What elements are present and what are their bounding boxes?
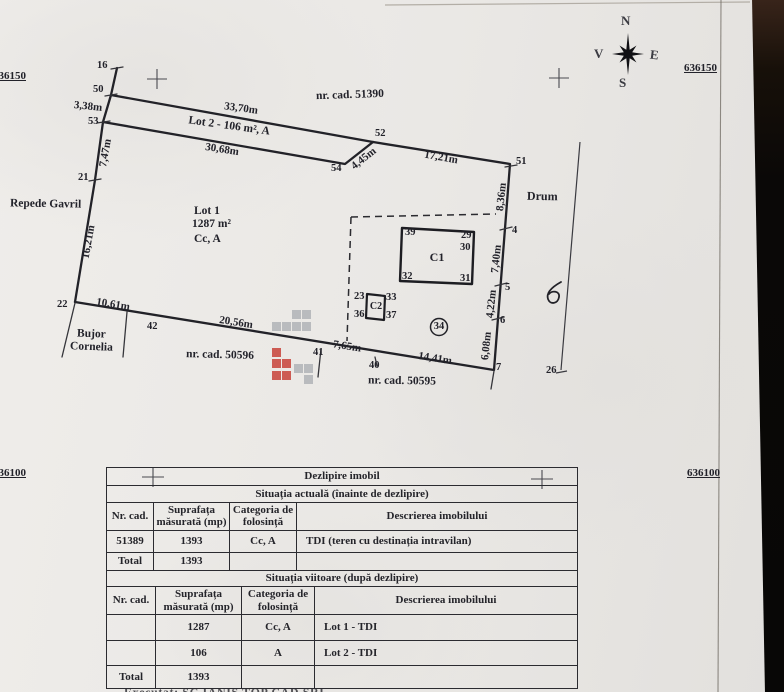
point-42: 42 [147,322,158,333]
building-c1-label: C1 [430,251,445,263]
cell-descriere: TDI (teren cu destinația intravilan) [297,530,578,552]
cell-suprafata: 1393 [154,530,230,552]
table-row: 106 A Lot 2 - TDI [107,641,578,666]
cell-nr-cad [107,641,156,666]
grid-label-top-right: 636150 [684,63,717,74]
cell-total-value: 1393 [154,552,230,570]
c1-corner-30: 30 [460,243,471,254]
cell-nr-cad: 51389 [107,530,154,552]
point-53: 53 [88,117,99,128]
point-16: 16 [97,61,108,72]
executor-line: Executat: SC IANIS TOP CAD SRL [124,685,328,692]
cadastral-plan-page: 636150 636150 636100 636100 N V E S nr. … [0,0,784,692]
road-label: Drum [527,190,558,203]
building-c2-label: C2 [370,302,382,312]
grid-cross-marks [142,68,569,489]
road-edge-line [556,142,580,373]
point-21: 21 [78,173,89,184]
section-current: Situația actuală (înainte de dezlipire) [107,486,578,503]
header-suprafata: Suprafața măsurată (mp) [156,587,242,615]
cad-number-bottom: nr. cad. 50595 [368,375,436,388]
point-34-label: 34 [434,322,445,333]
c1-corner-32: 32 [402,272,413,283]
cell-suprafata: 106 [156,641,242,666]
cell-descriere: Lot 1 - TDI [315,615,578,641]
compass-v-label: V [594,46,603,62]
cell-suprafata: 1287 [156,615,242,641]
table-current-situation: Dezlipire imobil Situația actuală (înain… [106,467,578,571]
point-52: 52 [375,129,386,140]
header-suprafata: Suprafața măsurată (mp) [154,503,230,531]
cell-categoria: Cc, A [230,530,297,552]
cell-empty [297,552,578,570]
cell-empty [315,666,578,689]
handwritten-mark [548,282,561,303]
grid-label-bottom-right: 636100 [687,468,720,479]
point-54: 54 [331,164,342,175]
header-descriere: Descrierea imobilului [315,587,578,615]
compass-rose-icon [612,33,644,75]
point-51: 51 [516,157,527,168]
table-row: 1287 Cc, A Lot 1 - TDI [107,615,578,641]
section-future: Situația viitoare (după dezlipire) [107,571,578,587]
point-26: 26 [546,366,557,377]
point-6: 6 [500,316,505,327]
c1-corner-31: 31 [460,274,471,285]
cell-descriere: Lot 2 - TDI [315,641,578,666]
header-descriere: Descrierea imobilului [297,503,578,531]
c2-corner-33: 33 [386,293,397,304]
point-7: 7 [496,363,501,374]
grid-label-bottom-left: 636100 [0,468,26,479]
cell-total-label: Total [107,552,154,570]
cell-categoria: A [242,641,315,666]
c1-corner-39: 39 [405,228,416,239]
neighbor-bottom-label-1: Bujor [77,329,106,341]
c2-corner-37: 37 [386,311,397,322]
survey-ticks [62,67,517,389]
lot1-area-label: 1287 m² [192,219,231,231]
table-title: Dezlipire imobil [107,468,578,486]
header-nr-cad: Nr. cad. [107,503,154,531]
lot1-name-label: Lot 1 [194,206,220,218]
cell-nr-cad [107,615,156,641]
c2-corner-23: 23 [354,292,365,303]
header-nr-cad: Nr. cad. [107,587,156,615]
point-50: 50 [93,85,104,96]
grid-label-top-left: 636150 [0,71,26,82]
neighbor-bottom-label-2: Cornelia [70,341,113,354]
compass-s-label: S [619,75,626,91]
cad-number-bottom-left: nr. cad. 50596 [186,349,254,362]
table-row-total: Total 1393 [107,552,578,570]
compass-n-label: N [621,13,630,29]
watermark-logo [272,310,313,384]
point-5: 5 [505,283,510,294]
cell-categoria: Cc, A [242,615,315,641]
table-row: 51389 1393 Cc, A TDI (teren cu destinați… [107,530,578,552]
point-4: 4 [512,226,517,237]
header-categoria: Categoria de folosință [242,587,315,615]
point-22: 22 [57,300,68,311]
point-40: 40 [369,361,380,372]
cell-empty [230,552,297,570]
c2-corner-36: 36 [354,310,365,321]
neighbor-left-label: Repede Gavril [10,198,81,211]
header-categoria: Categoria de folosință [230,503,297,531]
cad-number-top: nr. cad. 51390 [316,89,384,103]
table-future-situation: Situația viitoare (după dezlipire) Nr. c… [106,570,578,689]
c1-corner-29: 29 [461,231,472,242]
lot1-category-label: Cc, A [194,234,221,246]
point-41: 41 [313,348,324,359]
